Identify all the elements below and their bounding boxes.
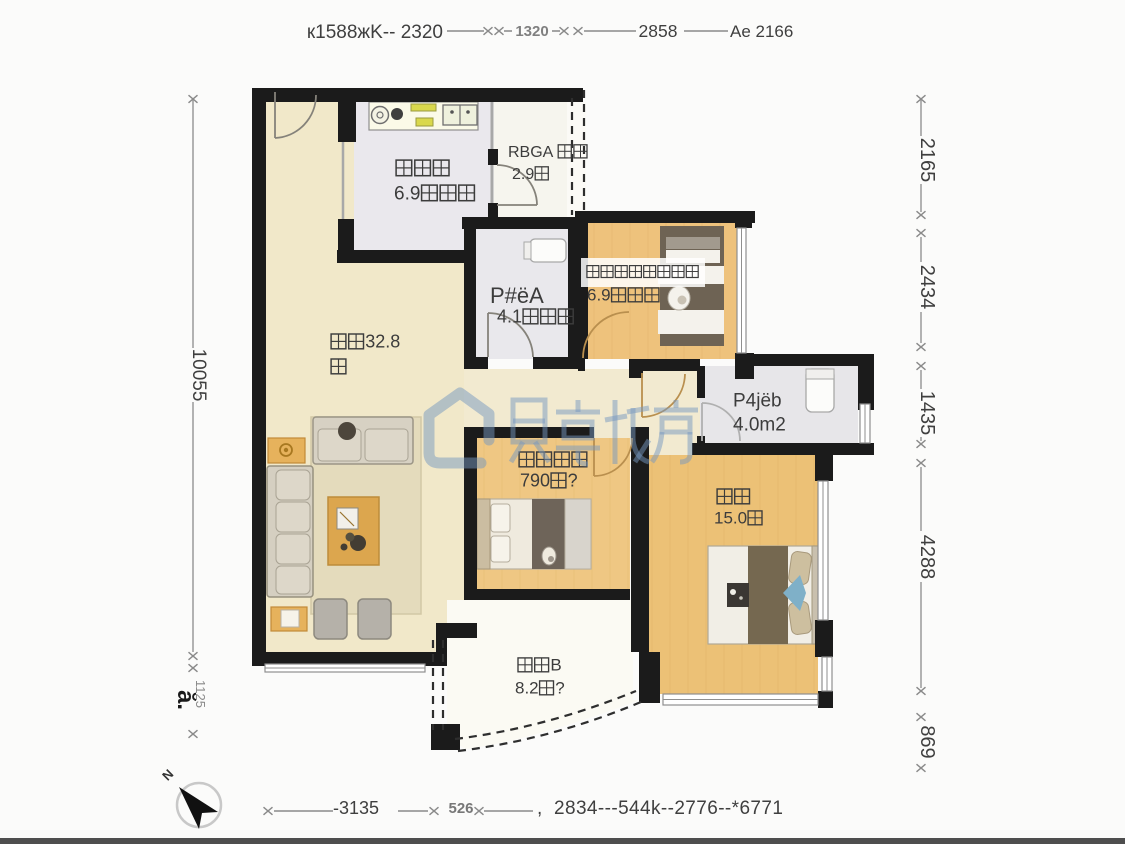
svg-text:869: 869 [916,725,938,758]
svg-text:2434: 2434 [916,265,938,310]
svg-text:2165: 2165 [916,138,938,183]
svg-text:8.2: 8.2 [515,679,539,698]
svg-text:-3135: -3135 [333,798,379,818]
svg-text:4.0m2: 4.0m2 [733,414,786,435]
svg-text:ă.: ă. [172,690,199,710]
svg-text:15.0: 15.0 [714,509,747,528]
svg-text:N: N [159,766,176,783]
svg-text:?: ? [555,679,564,698]
svg-text:526: 526 [448,800,473,817]
svg-text:1320: 1320 [515,23,548,40]
svg-text:2.9: 2.9 [512,166,534,183]
svg-text:RBGA: RBGA [508,144,554,161]
svg-text:790: 790 [520,470,550,490]
svg-text:B: B [550,656,561,675]
svg-text:32.8: 32.8 [365,331,400,351]
svg-text:6.9: 6.9 [587,286,611,305]
svg-text:2858: 2858 [639,21,678,41]
svg-text:, 2834---544k--2776--*6771: , 2834---544k--2776--*6771 [537,798,783,819]
svg-text:к1588жK-- 2320: к1588жK-- 2320 [307,22,443,43]
svg-text:10055: 10055 [188,349,209,402]
svg-text:4288: 4288 [916,535,938,580]
svg-text:P#ëA: P#ëA [490,283,544,308]
svg-text:Ae 2166: Ae 2166 [730,22,793,41]
svg-text:P4jëb: P4jëb [733,390,782,411]
svg-text:1435: 1435 [916,391,938,436]
svg-text:6.9: 6.9 [394,183,420,204]
svg-text:4.1: 4.1 [497,306,522,326]
svg-text:?: ? [568,470,578,490]
